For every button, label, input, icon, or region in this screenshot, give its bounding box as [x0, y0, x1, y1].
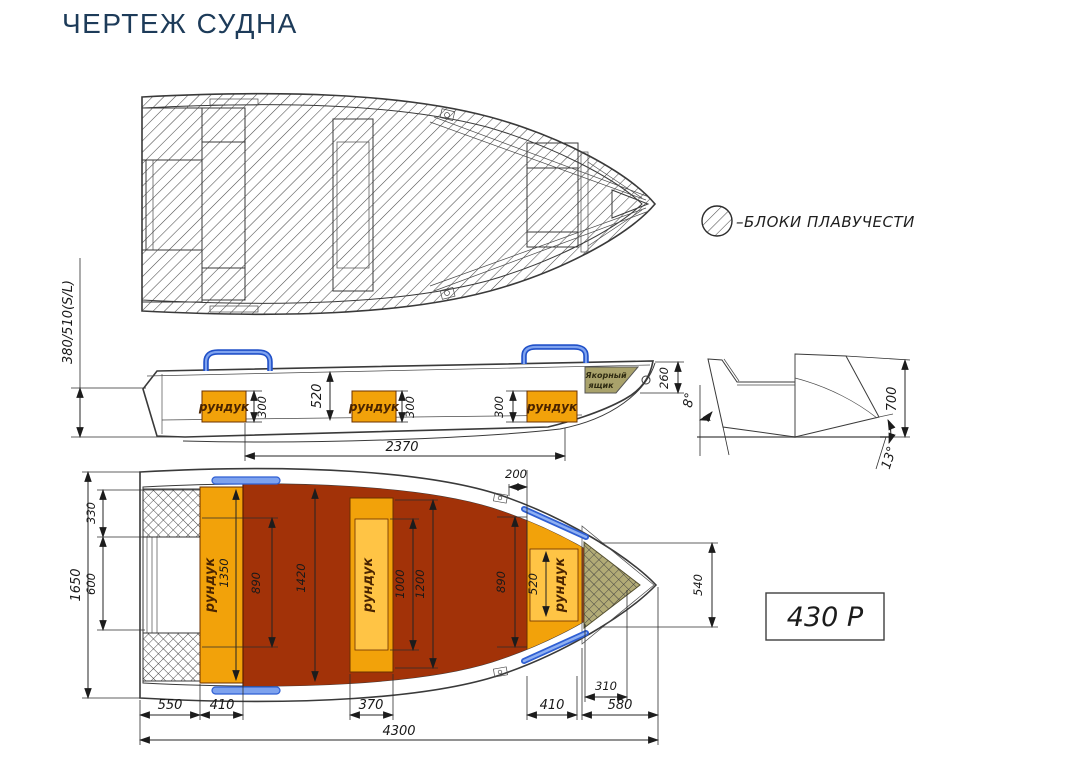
dim-beam: 1650 — [69, 568, 84, 601]
dim-transom-width: 600 — [84, 573, 98, 595]
dim-block-width: 330 — [84, 502, 98, 524]
dim-bow-height: 260 — [657, 367, 671, 389]
dim-locker1-length: 1350 — [217, 558, 231, 587]
locker-mid-label: рундук — [348, 400, 400, 414]
dim-bow-block: 310 — [595, 679, 617, 693]
dim-cockpit-length: 2370 — [385, 440, 418, 455]
price-badge: 430 Р — [766, 593, 884, 640]
dim-410-fwd: 410 — [540, 698, 565, 713]
top-view — [142, 94, 655, 315]
bow-half-section — [795, 354, 879, 437]
dim-floor-length: 1420 — [294, 563, 308, 592]
dim-550: 550 — [158, 698, 183, 713]
deck-locker-aft-label: рундук — [203, 557, 218, 614]
buoyancy-legend-icon — [702, 206, 732, 236]
dim-locker2-depth: 300 — [403, 396, 417, 418]
dim-oarlock-offset: 200 — [505, 467, 527, 481]
chine-curve — [795, 378, 877, 418]
deck-handle-bottom — [212, 687, 280, 694]
dim-floor-width-fwd: 890 — [494, 571, 508, 593]
boat-blueprint: –БЛОКИ ПЛАВУЧЕСТИ 380/510(S/L) рундук ру… — [0, 0, 1069, 772]
dim-locker3-depth: 300 — [492, 396, 506, 418]
anchor-box-label-2: ящик — [587, 381, 614, 390]
dim-locker1-depth: 300 — [255, 396, 269, 418]
deck-buoyancy-block-bottom — [143, 633, 200, 681]
deck-locker-mid-label: рундук — [361, 557, 376, 614]
legend-label: –БЛОКИ ПЛАВУЧЕСТИ — [736, 213, 915, 231]
price-label: 430 Р — [787, 602, 864, 633]
deck-view: рундук 1350 890 1420 рундук 1000 1200 89… — [69, 467, 718, 745]
handle-fwd — [524, 347, 586, 364]
legend: –БЛОКИ ПЛАВУЧЕСТИ — [702, 206, 915, 236]
dim-side-height: 700 — [885, 387, 900, 412]
dim-locker3-inner: 520 — [526, 573, 540, 595]
deck-handle-top — [212, 477, 280, 484]
deck-locker-fwd-label: рундук — [553, 557, 568, 614]
dim-stern-height: 380/510(S/L) — [61, 280, 76, 364]
transom-half-section — [708, 359, 795, 437]
transom-zone — [147, 537, 200, 633]
deck-buoyancy-block-top — [143, 489, 200, 537]
dim-370: 370 — [359, 698, 384, 713]
dim-locker2-inner: 1000 — [393, 569, 407, 598]
bow-buoyancy — [582, 526, 654, 644]
dim-410-aft: 410 — [210, 698, 235, 713]
side-view: рундук рундук рундук Якорный ящик 300 52… — [143, 347, 684, 461]
anchor-box-label-1: Якорный — [584, 371, 627, 380]
transom-view: 8° 700 13° — [681, 354, 910, 471]
dim-580: 580 — [608, 698, 633, 713]
dim-transom-angle: 8° — [681, 391, 699, 409]
locker-fwd-label: рундук — [526, 400, 578, 414]
dim-floor-width-aft: 890 — [249, 572, 263, 594]
dim-locker2-outer: 1200 — [413, 569, 427, 598]
dim-bow-width: 540 — [691, 574, 705, 596]
locker-aft-label: рундук — [198, 400, 250, 414]
dim-overall-length: 4300 — [382, 724, 415, 739]
dim-cockpit-depth: 520 — [310, 384, 325, 409]
